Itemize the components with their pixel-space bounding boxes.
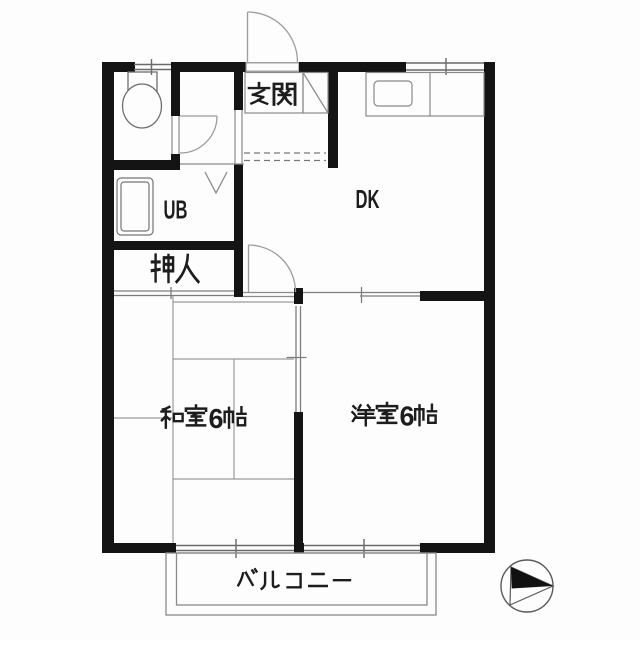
- svg-text:6: 6: [209, 403, 224, 434]
- svg-text:DK: DK: [356, 184, 380, 214]
- svg-text:UB: UB: [164, 195, 188, 225]
- svg-text:6: 6: [400, 401, 415, 432]
